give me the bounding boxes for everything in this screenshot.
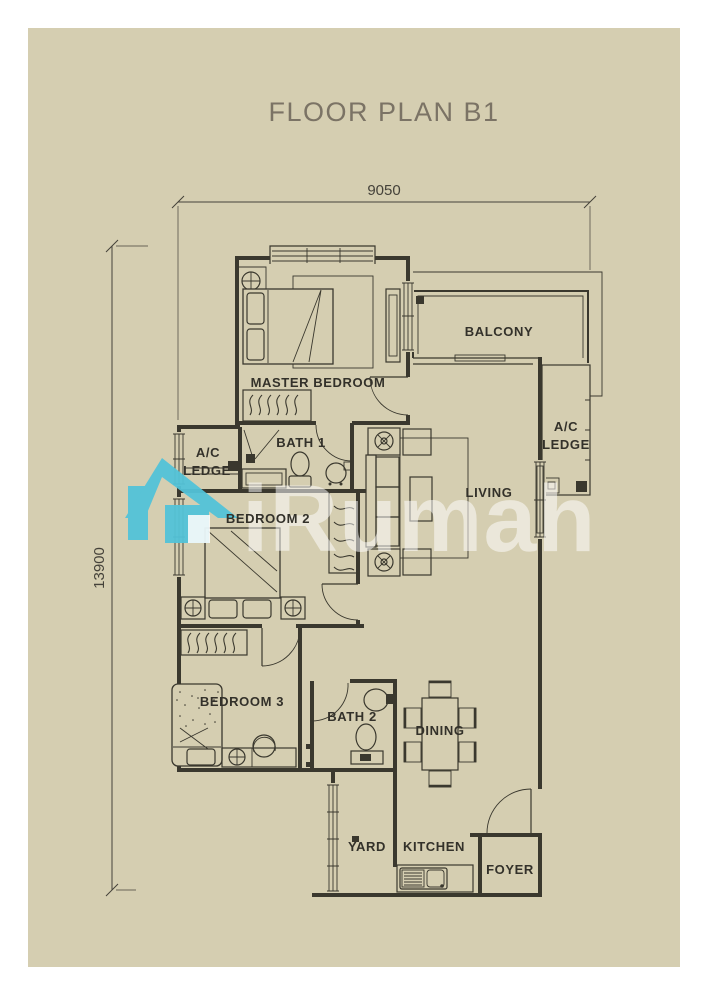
- yard-vent: [327, 783, 339, 893]
- svg-text:LEDGE: LEDGE: [542, 437, 590, 452]
- dimension-width-label: 9050: [367, 182, 400, 199]
- svg-text:A/C: A/C: [196, 445, 220, 460]
- svg-text:LEDGE: LEDGE: [183, 463, 231, 478]
- label-foyer: FOYER: [486, 862, 534, 877]
- label-bedroom-2: BEDROOM 2: [226, 511, 310, 526]
- label-bedroom-3: BEDROOM 3: [200, 694, 284, 709]
- label-master-bedroom: MASTER BEDROOM: [251, 375, 386, 390]
- master-balcony-window: [402, 281, 414, 352]
- label-dining: DINING: [415, 723, 464, 738]
- master-bedroom-window: [270, 246, 375, 264]
- label-living: LIVING: [466, 485, 513, 500]
- floor-plan-drawing: FLOOR PLAN B1 9050 13900: [0, 0, 707, 1000]
- label-bath-1: BATH 1: [276, 435, 326, 450]
- svg-text:A/C: A/C: [554, 419, 578, 434]
- label-bath-2: BATH 2: [327, 709, 377, 724]
- label-yard: YARD: [348, 839, 386, 854]
- dimension-height-label: 13900: [91, 547, 108, 589]
- floor-plan-page: FLOOR PLAN B1 9050 13900: [0, 0, 707, 1000]
- page-title: FLOOR PLAN B1: [268, 97, 499, 127]
- label-balcony: BALCONY: [465, 324, 533, 339]
- label-kitchen: KITCHEN: [403, 839, 465, 854]
